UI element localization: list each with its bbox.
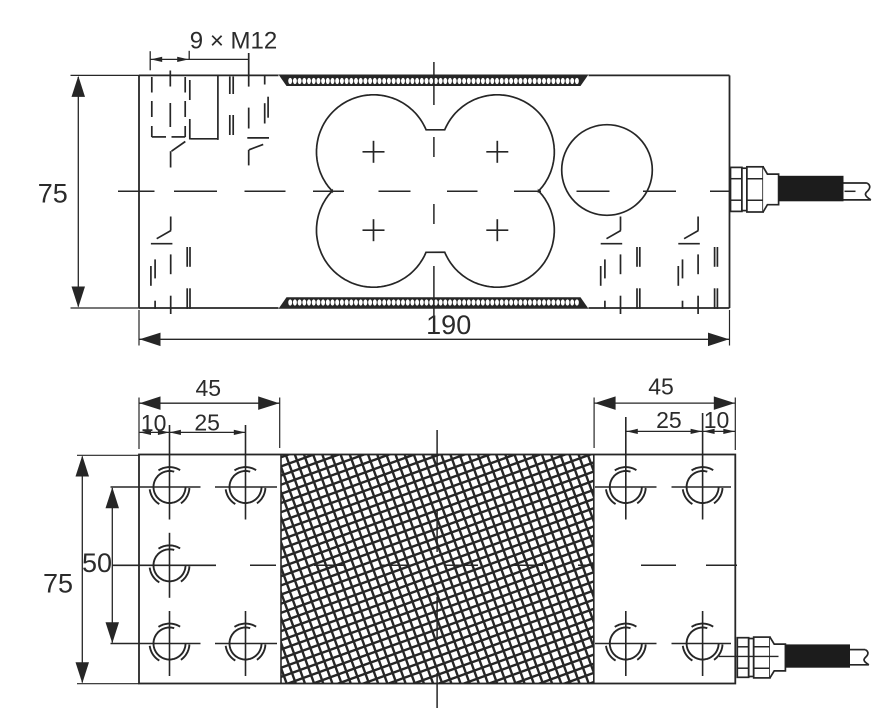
svg-text:45: 45 — [648, 374, 674, 400]
svg-text:25: 25 — [656, 407, 682, 433]
svg-text:50: 50 — [82, 548, 112, 578]
svg-text:75: 75 — [38, 178, 68, 208]
svg-text:190: 190 — [426, 310, 471, 340]
svg-text:10: 10 — [704, 407, 730, 433]
svg-text:9 × M12: 9 × M12 — [190, 28, 277, 55]
svg-text:25: 25 — [194, 410, 220, 436]
svg-text:10: 10 — [141, 410, 167, 436]
svg-text:45: 45 — [196, 375, 222, 401]
svg-text:75: 75 — [43, 569, 73, 599]
